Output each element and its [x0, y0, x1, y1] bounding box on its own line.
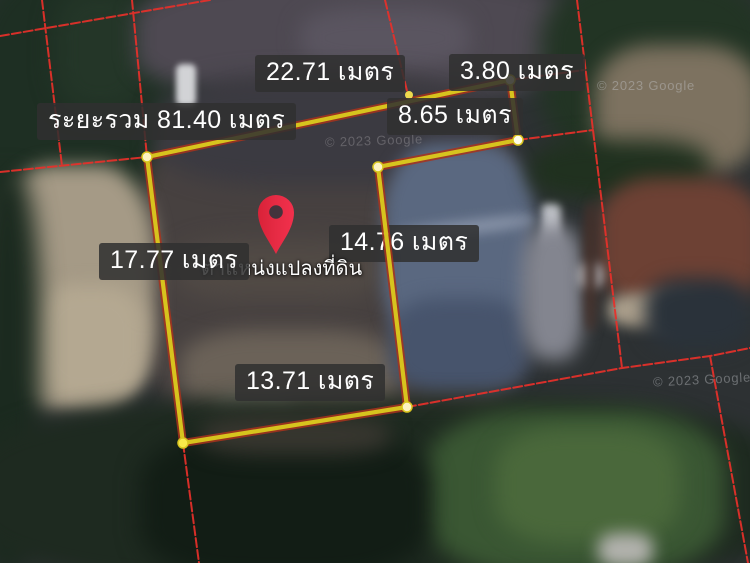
google-watermark: © 2023 Google: [653, 369, 750, 389]
terrain-dirt-below-plot: [200, 415, 390, 455]
satellite-map[interactable]: © 2023 Google © 2023 Google © 2023 Googl…: [0, 0, 750, 563]
terrain-lawn-bright: [495, 428, 680, 543]
measurement-label-bottom: 13.71 เมตร: [235, 364, 385, 401]
terrain-dark-vehicle: [645, 278, 750, 350]
measurement-label-notch: 8.65 เมตร: [387, 98, 523, 135]
terrain-pole: [584, 203, 597, 331]
measurement-label-top-right: 3.80 เมตร: [449, 54, 585, 91]
total-distance-label: ระยะรวม 81.40 เมตร: [37, 103, 296, 140]
measurement-label-left: 17.77 เมตร: [99, 243, 249, 280]
terrain-light-blob-bottom: [598, 533, 653, 563]
vertex-dot: [513, 135, 523, 145]
measurement-label-top: 22.71 เมตร: [255, 55, 405, 92]
terrain-gray-ground-right: [522, 225, 584, 360]
terrain-blue-roof-shade: [390, 298, 530, 393]
terrain-tan-building-light: [35, 285, 145, 400]
google-watermark: © 2023 Google: [597, 78, 695, 93]
terrain-trees-top: [55, 0, 145, 110]
terrain-chimney: [176, 64, 196, 106]
